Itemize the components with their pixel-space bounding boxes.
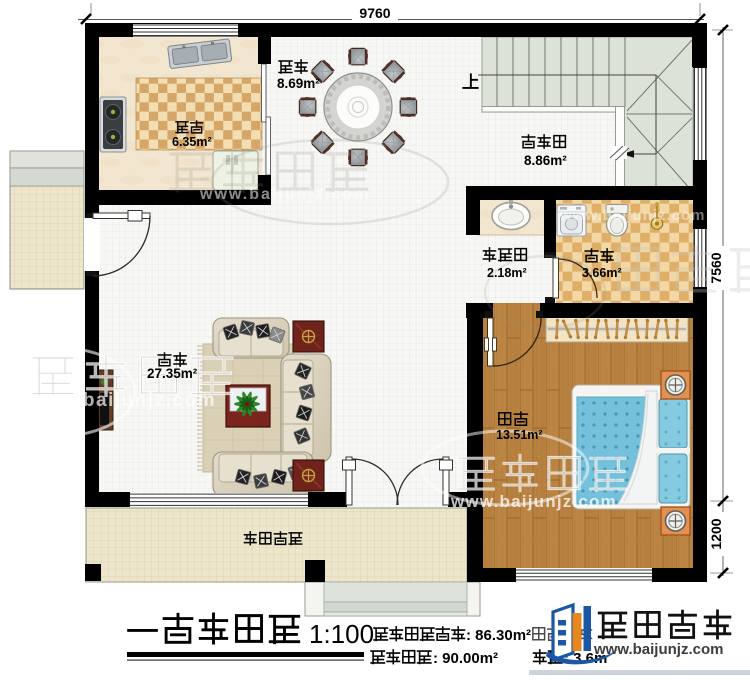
svg-text:1200: 1200 [708, 518, 724, 549]
svg-text:www.baijunjz.com: www.baijunjz.com [199, 186, 370, 203]
svg-text:: 86.30m²: : 86.30m² [466, 627, 531, 644]
svg-text:6.35m²: 6.35m² [172, 135, 212, 149]
svg-text:www.baijunjz.com: www.baijunjz.com [450, 492, 617, 511]
svg-text:9760: 9760 [359, 5, 390, 21]
svg-text:8.86m²: 8.86m² [524, 153, 567, 168]
svg-text:1:100: 1:100 [309, 619, 374, 649]
svg-text:7560: 7560 [708, 252, 724, 283]
svg-text:3.66m²: 3.66m² [582, 266, 622, 280]
svg-text:2.18m²: 2.18m² [487, 266, 527, 280]
svg-text:www.baijunjz.com: www.baijunjz.com [593, 641, 723, 658]
svg-text:13.51m²: 13.51m² [496, 428, 543, 442]
svg-text:27.35m²: 27.35m² [147, 366, 198, 381]
svg-text:: 90.00m²: : 90.00m² [433, 650, 498, 667]
svg-text:8.69m²: 8.69m² [277, 76, 320, 91]
svg-text:www.baijunjz.com: www.baijunjz.com [559, 207, 705, 224]
svg-text:www.baijunjz.com: www.baijunjz.com [27, 390, 216, 411]
